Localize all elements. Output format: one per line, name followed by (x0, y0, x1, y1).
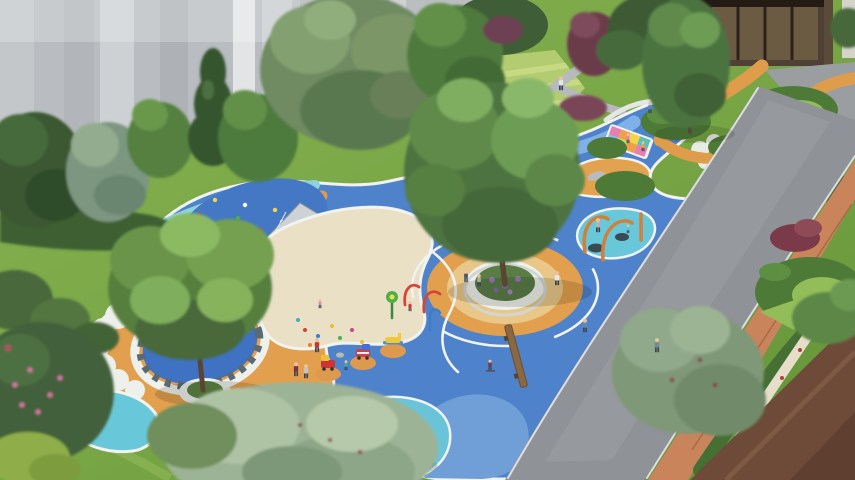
rendering-canvas (0, 0, 855, 480)
scooter (486, 370, 495, 372)
playground-rendering (0, 0, 855, 480)
